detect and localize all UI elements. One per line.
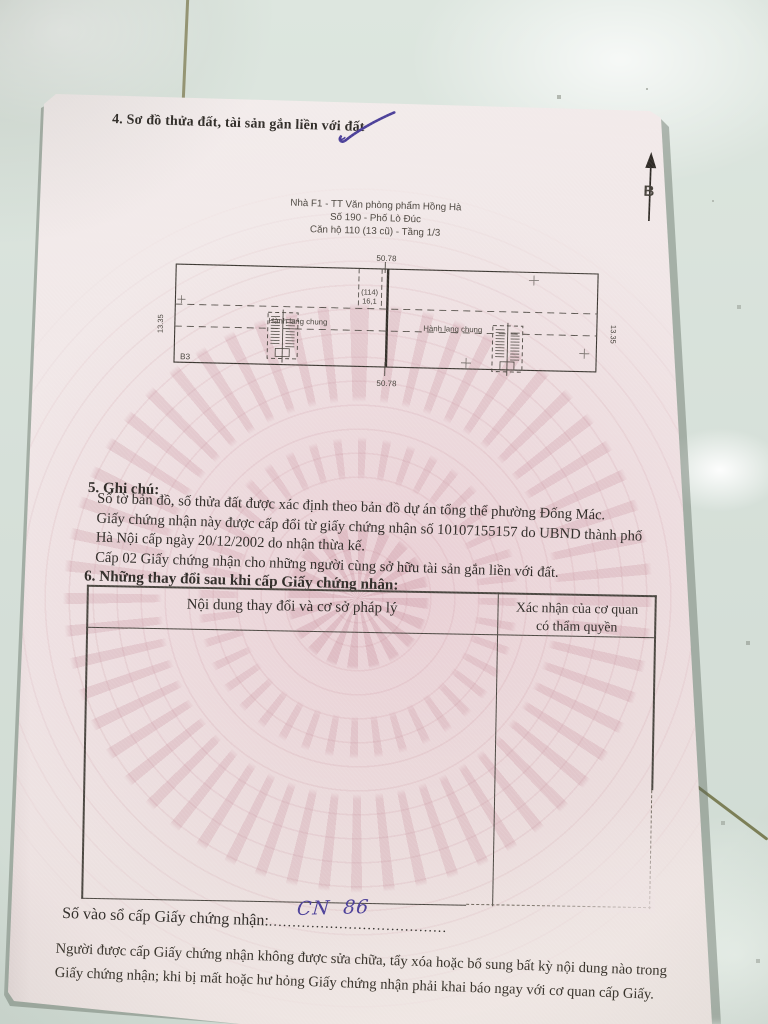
plan-center-wall bbox=[386, 269, 388, 367]
floor-specks bbox=[0, 0, 2, 2]
dim-bottom: 50.78 bbox=[376, 379, 397, 388]
dim-top: 50.78 bbox=[376, 254, 397, 263]
pen-checkmark bbox=[334, 107, 405, 146]
changes-table: Nội dung thay đổi và cơ sở pháp lý Xác n… bbox=[81, 585, 657, 909]
room-number: (114) bbox=[361, 287, 379, 296]
block-label: B3 bbox=[180, 352, 191, 361]
section4-heading: 4. Sơ đồ thửa đất, tài sản gắn liền với … bbox=[112, 112, 365, 136]
table-border-bottom bbox=[81, 897, 466, 905]
tile-grout-line-top bbox=[182, 0, 190, 102]
survey-ticks bbox=[176, 267, 591, 371]
registry-label: Số vào sổ cấp Giấy chứng nhận: bbox=[62, 905, 269, 930]
floor-plan-diagram: 50.78 50.78 13.35 13.35 (114) 16,1 Hành … bbox=[148, 243, 621, 396]
dim-right: 13.35 bbox=[609, 325, 618, 344]
corridor-label-right: Hành lang chung bbox=[423, 324, 482, 334]
plan-caption: Nhà F1 - TT Văn phòng phẩm Hồng Hà Số 19… bbox=[247, 195, 503, 242]
room-area: 16,1 bbox=[362, 296, 377, 305]
certificate-paper: 4. Sơ đồ thửa đất, tài sản gắn liền với … bbox=[0, 0, 768, 1024]
table-border-left bbox=[81, 585, 88, 899]
table-col1-header: Nội dung thay đổi và cơ sở pháp lý bbox=[86, 595, 497, 620]
footer-warning: Người được cấp Giấy chứng nhận không đượ… bbox=[54, 938, 670, 1008]
dim-left: 13.35 bbox=[156, 314, 165, 333]
north-label: B bbox=[643, 183, 655, 200]
handwritten-registry-number: CN 86 bbox=[296, 896, 370, 920]
table-col2-header: Xác nhận của cơ quan có thẩm quyền bbox=[497, 598, 657, 636]
table-corner-fade bbox=[455, 760, 658, 914]
corridor-label-left: Hành lang chung bbox=[268, 316, 327, 326]
registry-number-line: Số vào sổ cấp Giấy chứng nhận:..........… bbox=[62, 905, 448, 937]
stairs-right-icon bbox=[492, 323, 523, 377]
photo-of-certificate-page: 4. Sơ đồ thửa đất, tài sản gắn liền với … bbox=[0, 0, 768, 1024]
